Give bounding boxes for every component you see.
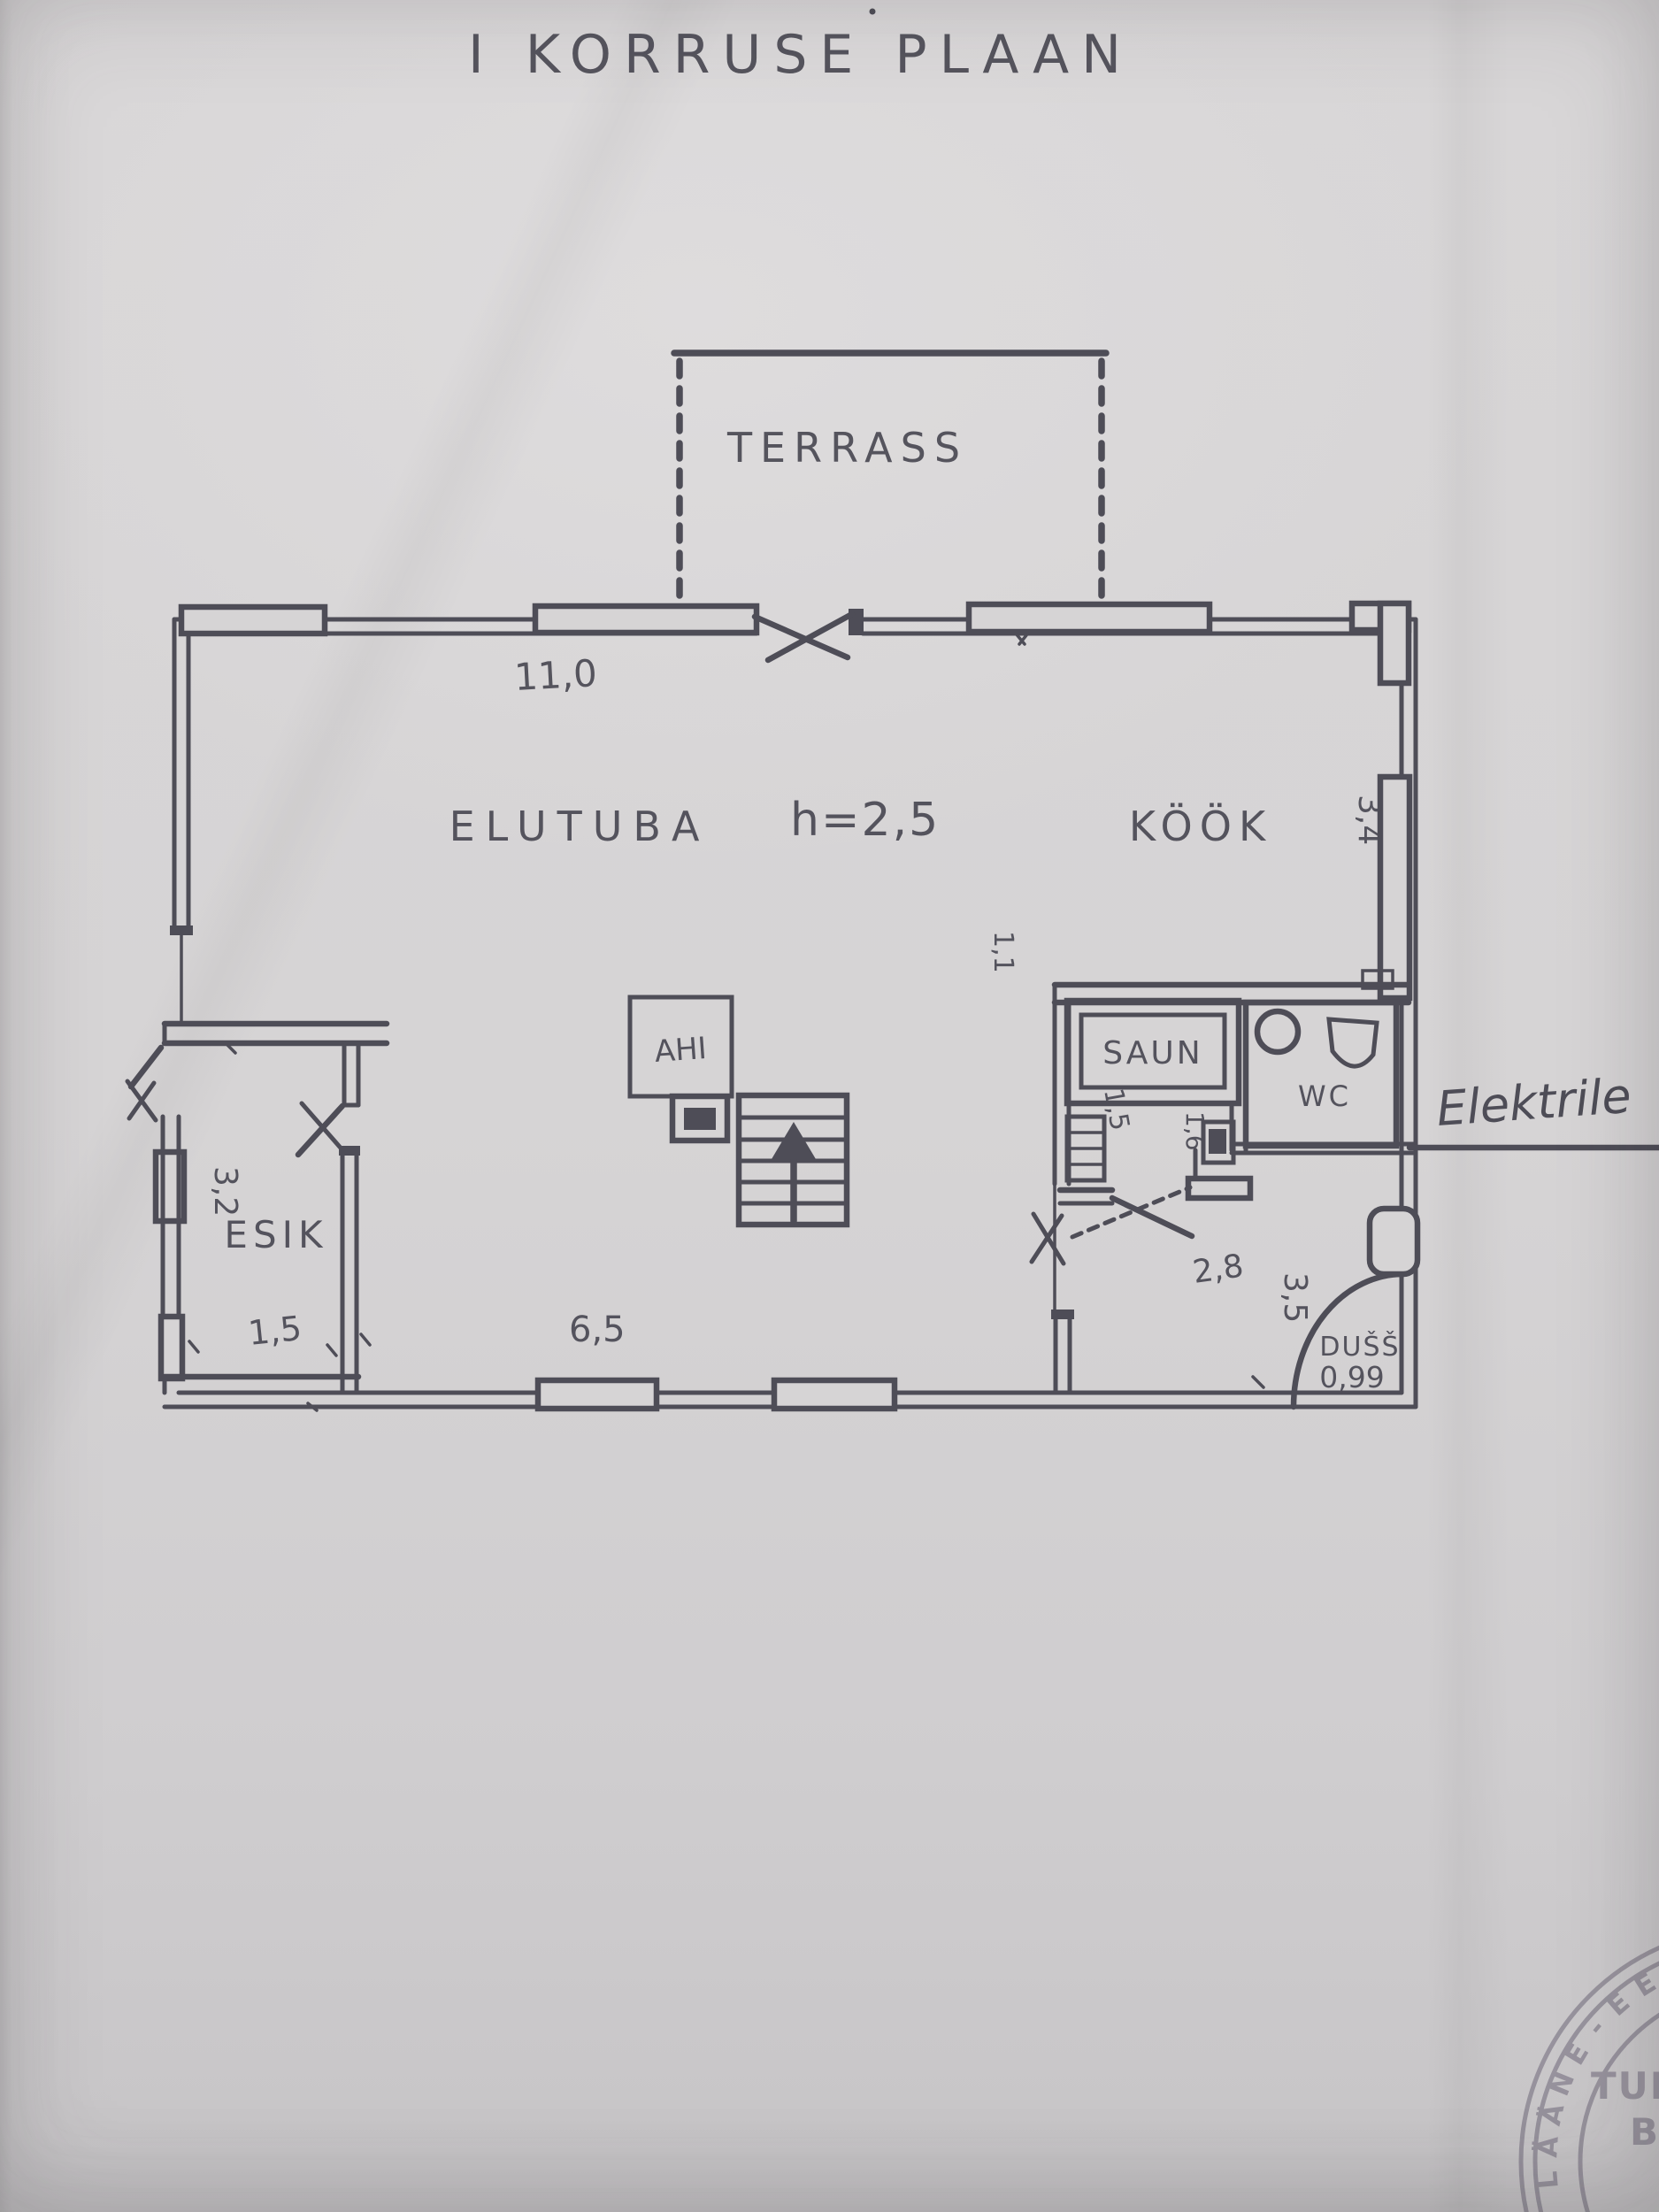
exterior-walls <box>165 619 1416 1407</box>
svg-text:E: E <box>1601 1986 1637 2023</box>
floor-plan-drawing: I KORRUSE PLAAN TERRASS <box>0 0 1659 2212</box>
dim-wash-depth: 3,5 <box>1277 1272 1313 1323</box>
label-height: h=2,5 <box>790 794 940 847</box>
window-top-center <box>535 606 757 633</box>
dim-shower: 0,99 <box>1319 1360 1384 1394</box>
stairs-up-arrow <box>772 1122 816 1221</box>
window-top-left <box>181 607 325 634</box>
svg-text:L: L <box>1532 2170 1565 2190</box>
page-title: I KORRUSE PLAAN <box>468 24 1133 86</box>
room-label-duss: DUŠŠ <box>1319 1330 1400 1363</box>
window-bottom-2 <box>774 1380 895 1409</box>
dim-wash-width: 2,8 <box>1191 1248 1246 1291</box>
dim-wall-offset: 1,1 <box>987 931 1018 973</box>
official-stamp: L Ä Ä N E - E E S T I TULEO BÜ <box>1521 1927 1659 2212</box>
wc-sink <box>1257 1011 1298 1052</box>
dim-top-width: 11,0 <box>513 651 598 699</box>
scanned-floor-plan: I KORRUSE PLAAN TERRASS <box>0 0 1659 2212</box>
terrace: TERRASS <box>674 353 1106 607</box>
esik-interior-door <box>298 1103 344 1155</box>
dim-saun-depth: 1,6 <box>1180 1111 1210 1151</box>
svg-text:N: N <box>1543 2067 1581 2101</box>
room-label-elutuba: ELUTUBA <box>449 803 710 850</box>
ahi-stove: AHI <box>630 997 732 1141</box>
sauna-bench <box>1067 1117 1104 1180</box>
esik-exterior-door <box>127 1048 161 1120</box>
room-label-kook: KÖÖK <box>1129 803 1272 850</box>
label-ahi: AHI <box>653 1031 708 1070</box>
sauna-door-swing <box>1072 1187 1192 1237</box>
stamp-line1: TULEO <box>1591 2064 1659 2108</box>
note-elektrile: Elektrile <box>1435 1068 1633 1137</box>
dim-esik-width: 1,5 <box>246 1309 303 1353</box>
ink-speck <box>870 9 876 15</box>
room-label-esik: ESIK <box>224 1213 327 1256</box>
window-corner-v <box>1380 603 1409 683</box>
room-label-wc: WC <box>1298 1079 1351 1113</box>
svg-text:Ä: Ä <box>1532 2135 1565 2158</box>
dim-kook-side: 3,4 <box>1351 795 1387 845</box>
washroom: DUŠŠ 0,99 2,8 3,5 <box>1051 1209 1417 1407</box>
svg-text:E: E <box>1629 1967 1659 2004</box>
wc-toilet <box>1329 1019 1377 1066</box>
terrace-door <box>755 609 864 660</box>
svg-text:-: - <box>1580 2013 1612 2042</box>
room-label-saun: SAUN <box>1102 1035 1202 1071</box>
window-bottom-1 <box>538 1380 657 1409</box>
washroom-door <box>1032 1214 1064 1263</box>
water-heater <box>1370 1209 1417 1274</box>
dim-elutuba-width: 6,5 <box>569 1310 626 1350</box>
electric-note: Elektrile <box>1409 1068 1659 1148</box>
window-top-right <box>969 604 1210 632</box>
room-label-terrass: TERRASS <box>726 424 968 472</box>
stairs <box>739 1095 847 1225</box>
dim-esik-depth: 3,2 <box>207 1166 243 1217</box>
stamp-line2: BÜ <box>1630 2109 1659 2154</box>
